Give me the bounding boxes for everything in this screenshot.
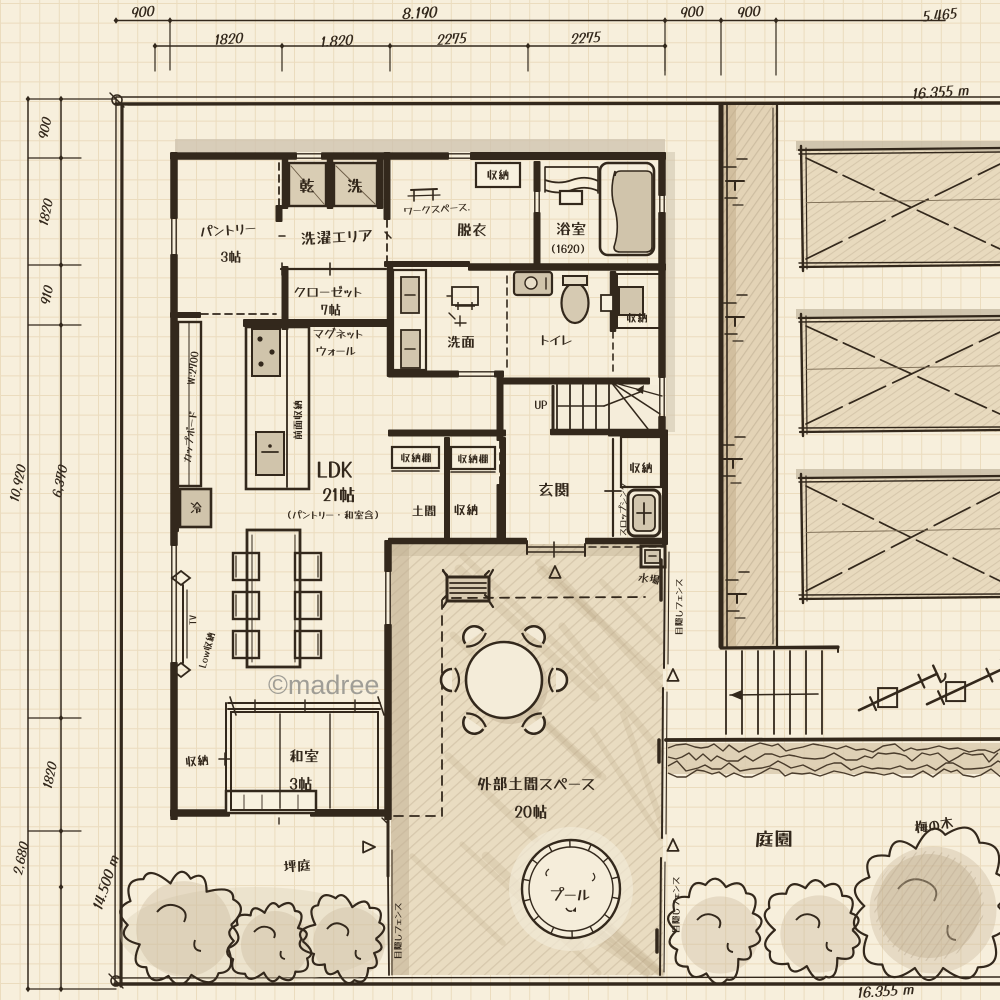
svg-text:©madree: ©madree (268, 670, 379, 700)
